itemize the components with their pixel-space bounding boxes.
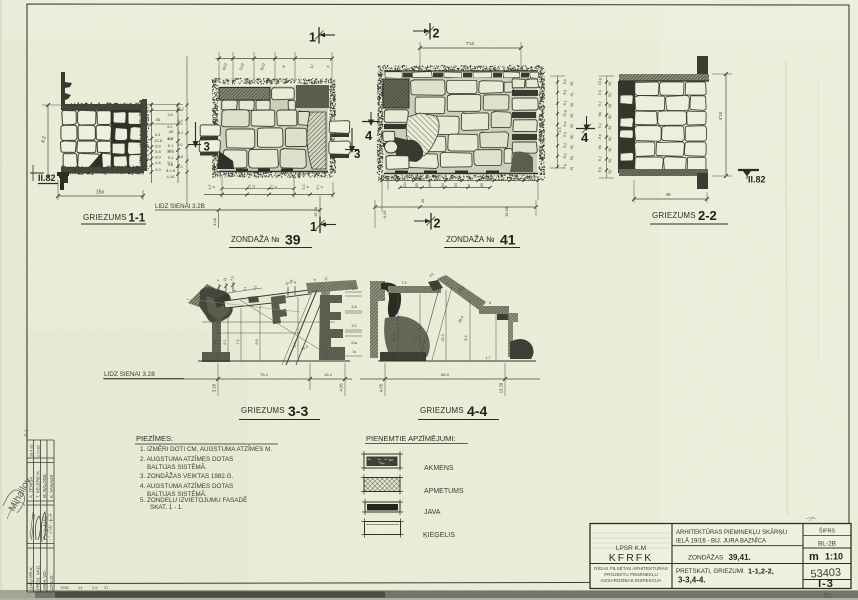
svg-text:4.0: 4.0 [177,165,182,169]
svg-text:3: 3 [204,142,210,154]
svg-text:ZONDĀŽAS: ZONDĀŽAS [688,553,724,562]
svg-text:4: 4 [581,130,589,145]
svg-text:13.2: 13.2 [176,107,183,111]
svg-text:4'15: 4'15 [718,111,723,120]
svg-text:8.0.8: 8.0.8 [166,168,176,173]
svg-text:LIDZ SIENAI 3.28: LIDZ SIENAI 3.28 [104,371,155,378]
svg-text:ZONDAŽA №: ZONDAŽA № [446,235,495,244]
svg-text:85: 85 [480,183,484,187]
svg-text:APMETUMS: APMETUMS [424,488,464,495]
svg-text:3-3: 3-3 [288,403,308,419]
svg-text:-35: -35 [168,129,175,134]
svg-text:4: 4 [467,184,471,186]
svg-text:104: 104 [428,182,432,188]
svg-text:14: 14 [78,585,83,590]
svg-text:3.6: 3.6 [92,585,98,590]
svg-text:GRIEZUMS: GRIEZUMS [420,406,464,415]
svg-text:1: 1 [309,31,316,45]
svg-text:39: 39 [285,232,301,248]
svg-text:ARH. VD.: ARH. VD. [42,570,47,590]
svg-text:LIDZ SIENAI 3.2В: LIDZ SIENAI 3.2В [155,203,205,210]
svg-text:21: 21 [104,585,109,590]
svg-text:9.1: 9.1 [167,161,172,165]
svg-text:PIEŅEMTIE APZĪMĒJUMI:: PIEŅEMTIE APZĪMĒJUMI: [366,434,456,443]
svg-text:7.5: 7.5 [402,281,407,285]
svg-text:7.2: 7.2 [236,339,240,344]
svg-text:1. IZMĒRI DOTI CM, AUGSTUMA AT: 1. IZMĒRI DOTI CM, AUGSTUMA ATZĪMES M. [140,445,272,453]
svg-text:3.28: 3.28 [212,383,217,392]
svg-text:3.4: 3.4 [293,342,297,347]
svg-text:35: 35 [156,117,161,122]
svg-text:6.1: 6.1 [155,132,161,137]
svg-text:28.4.82: 28.4.82 [29,444,33,457]
svg-text:4: 4 [320,186,324,188]
svg-text:4: 4 [365,128,373,143]
svg-text:SKAT. 1 - 1.: SKAT. 1 - 1. [150,504,183,511]
svg-text:1982: 1982 [60,585,70,590]
svg-text:8.0: 8.0 [155,144,161,149]
svg-text:86.0: 86.0 [441,372,450,377]
svg-text:5.6: 5.6 [255,339,259,344]
svg-text:m: m [809,551,819,563]
svg-text:8.0: 8.0 [177,143,182,147]
svg-text:2-2: 2-2 [698,208,717,223]
svg-text:2.XI.82: 2.XI.82 [36,445,40,457]
svg-text:2. AUGSTUMA ATZĪMES DOTAS: 2. AUGSTUMA ATZĪMES DOTAS [140,455,233,463]
svg-text:T. KELERE-H.: T. KELERE-H. [35,470,40,498]
svg-text:I-3: I-3 [818,578,834,590]
svg-text:1.7: 1.7 [485,356,490,360]
svg-text:1-1,2-2,: 1-1,2-2, [748,567,774,576]
svg-text:8: 8 [489,301,491,305]
svg-text:ZONDAŽA №: ZONDAŽA № [231,235,280,244]
svg-text:4-16: 4-16 [166,174,175,179]
svg-text:16.4: 16.4 [324,372,333,377]
svg-text:DAĺU PR-K.: DAĺU PR-K. [27,566,33,590]
svg-text:8.4: 8.4 [464,335,468,340]
svg-text:6: 6 [274,186,278,188]
svg-text:II.82: II.82 [748,175,766,185]
svg-text:15o: 15o [96,190,105,196]
svg-text:1-1: 1-1 [129,213,146,225]
svg-text:JAVA: JAVA [424,509,441,516]
svg-text:ĶIEĢELIS: ĶIEĢELIS [423,532,455,539]
svg-text:3. ZONDĀŽAS VEIKTAS 1982.G.: 3. ZONDĀŽAS VEIKTAS 1982.G. [140,471,234,480]
svg-text:13.28: 13.28 [499,382,504,393]
svg-text:12: 12 [252,185,256,189]
svg-text:RĪGAS PILSĒTAS ARHITEKTŪRAS: RĪGAS PILSĒTAS ARHITEKTŪRAS [594,565,668,571]
svg-text:8: 8 [212,186,216,188]
svg-text:PIEZĪMES:: PIEZĪMES: [136,434,173,443]
svg-text:1:10: 1:10 [825,552,843,562]
svg-text:8.2: 8.2 [167,137,172,141]
svg-text:4.05: 4.05 [379,383,384,392]
svg-text:9.1: 9.1 [168,155,174,160]
svg-text:4.0: 4.0 [155,167,161,172]
svg-text:84: 84 [441,183,445,187]
svg-text:1: 1 [310,220,317,234]
svg-text:45: 45 [421,199,425,203]
svg-text:8.0: 8.0 [155,155,161,160]
svg-text:8: 8 [306,186,310,188]
svg-text:-4.06: -4.06 [339,383,344,393]
svg-text:15.38: 15.38 [504,206,509,217]
svg-text:3-6: 3-6 [351,305,356,309]
svg-text:5.5: 5.5 [558,128,562,133]
svg-text:5. ZONDEĻU IZVIETOJUMU FASADĒ: 5. ZONDEĻU IZVIETOJUMU FASADĒ [140,496,247,504]
svg-text:31a: 31a [351,341,357,345]
svg-text:KFRFK: KFRFK [609,552,653,564]
svg-text:9.1: 9.1 [414,335,418,340]
svg-text:M. BALODE: M. BALODE [42,474,47,498]
svg-text:85: 85 [415,183,419,187]
svg-text:41: 41 [500,232,516,248]
svg-text:-8.1: -8.1 [177,131,184,135]
svg-text:AIZSARDZĪBAS INSPEKCIJA: AIZSARDZĪBAS INSPEKCIJA [600,577,662,583]
svg-text:6.4: 6.4 [177,119,182,123]
svg-text:12.8: 12.8 [154,138,163,143]
svg-text:8.2: 8.2 [213,339,217,344]
svg-text:124: 124 [403,182,407,188]
svg-text:LPSR K.M: LPSR K.M [616,545,646,552]
svg-text:7'10: 7'10 [466,41,475,46]
svg-text:IELĀ 19/16 - BIJ. JURA BAZNĪCA: IELĀ 19/16 - BIJ. JURA BAZNĪCA [676,538,766,545]
svg-text:AKMENS: AKMENS [424,465,454,472]
svg-text:17: 17 [352,287,356,291]
svg-text:6.1: 6.1 [167,125,172,129]
svg-text:7a: 7a [352,350,356,354]
svg-text:2: 2 [434,217,441,231]
svg-text:GRIEZUMS: GRIEZUMS [652,211,696,220]
svg-text:-9.6: -9.6 [177,155,184,159]
svg-text:2: 2 [433,27,440,41]
svg-text:PROJEKTU PIEMINEKĻU: PROJEKTU PIEMINEKĻU [604,572,658,577]
svg-text:-4.05: -4.05 [382,210,387,220]
svg-text:3.28: 3.28 [212,217,217,226]
svg-text:IZPILD.: IZPILD. [49,574,54,590]
svg-text:15.2: 15.2 [441,334,445,341]
svg-text:PRETSKATI, GRIEZUMI: PRETSKATI, GRIEZUMI [676,568,744,575]
svg-text:BL-2B: BL-2B [818,541,836,548]
svg-text:4-6: 4-6 [155,160,162,165]
svg-text:ŠIFRS: ŠIFRS [819,528,836,535]
svg-text:4. AUGSTUMA ATZĪMES DOTAS: 4. AUGSTUMA ATZĪMES DOTAS [140,482,233,490]
svg-text:GRIEZUMS: GRIEZUMS [83,213,127,222]
svg-text:3.2: 3.2 [352,324,357,328]
svg-text:3: 3 [354,149,360,161]
svg-text:84: 84 [454,183,458,187]
svg-text:3-3,4-4.: 3-3,4-4. [678,576,706,585]
svg-text:ARHITEKTŪRAS PIEMINEKĻU SKĀRŅU: ARHITEKTŪRAS PIEMINEKĻU SKĀRŅU [676,529,787,536]
svg-text:4-2: 4-2 [23,429,30,437]
svg-text:75.4: 75.4 [260,372,269,377]
svg-text:3.5: 3.5 [167,113,172,117]
svg-text:PROJ. VAD.: PROJ. VAD. [35,565,40,590]
svg-text:BALTIJAS SISTĒMĀ.: BALTIJAS SISTĒMĀ. [147,463,207,471]
svg-text:49: 49 [665,192,671,197]
svg-text:5.0: 5.0 [167,149,172,153]
svg-text:6.1: 6.1 [223,339,227,344]
svg-text:5ѕ: 5ѕ [824,593,832,600]
svg-text:15.38: 15.38 [313,206,318,217]
svg-text:GRIEZUMS: GRIEZUMS [241,406,285,415]
svg-text:3-5: 3-5 [155,149,162,154]
svg-text:4-4: 4-4 [467,403,487,419]
svg-text:12.4: 12.4 [392,334,396,341]
svg-text:6.1: 6.1 [168,143,174,148]
svg-text:39,41.: 39,41. [729,553,751,562]
svg-text:K. VANAGS: K. VANAGS [49,475,54,498]
